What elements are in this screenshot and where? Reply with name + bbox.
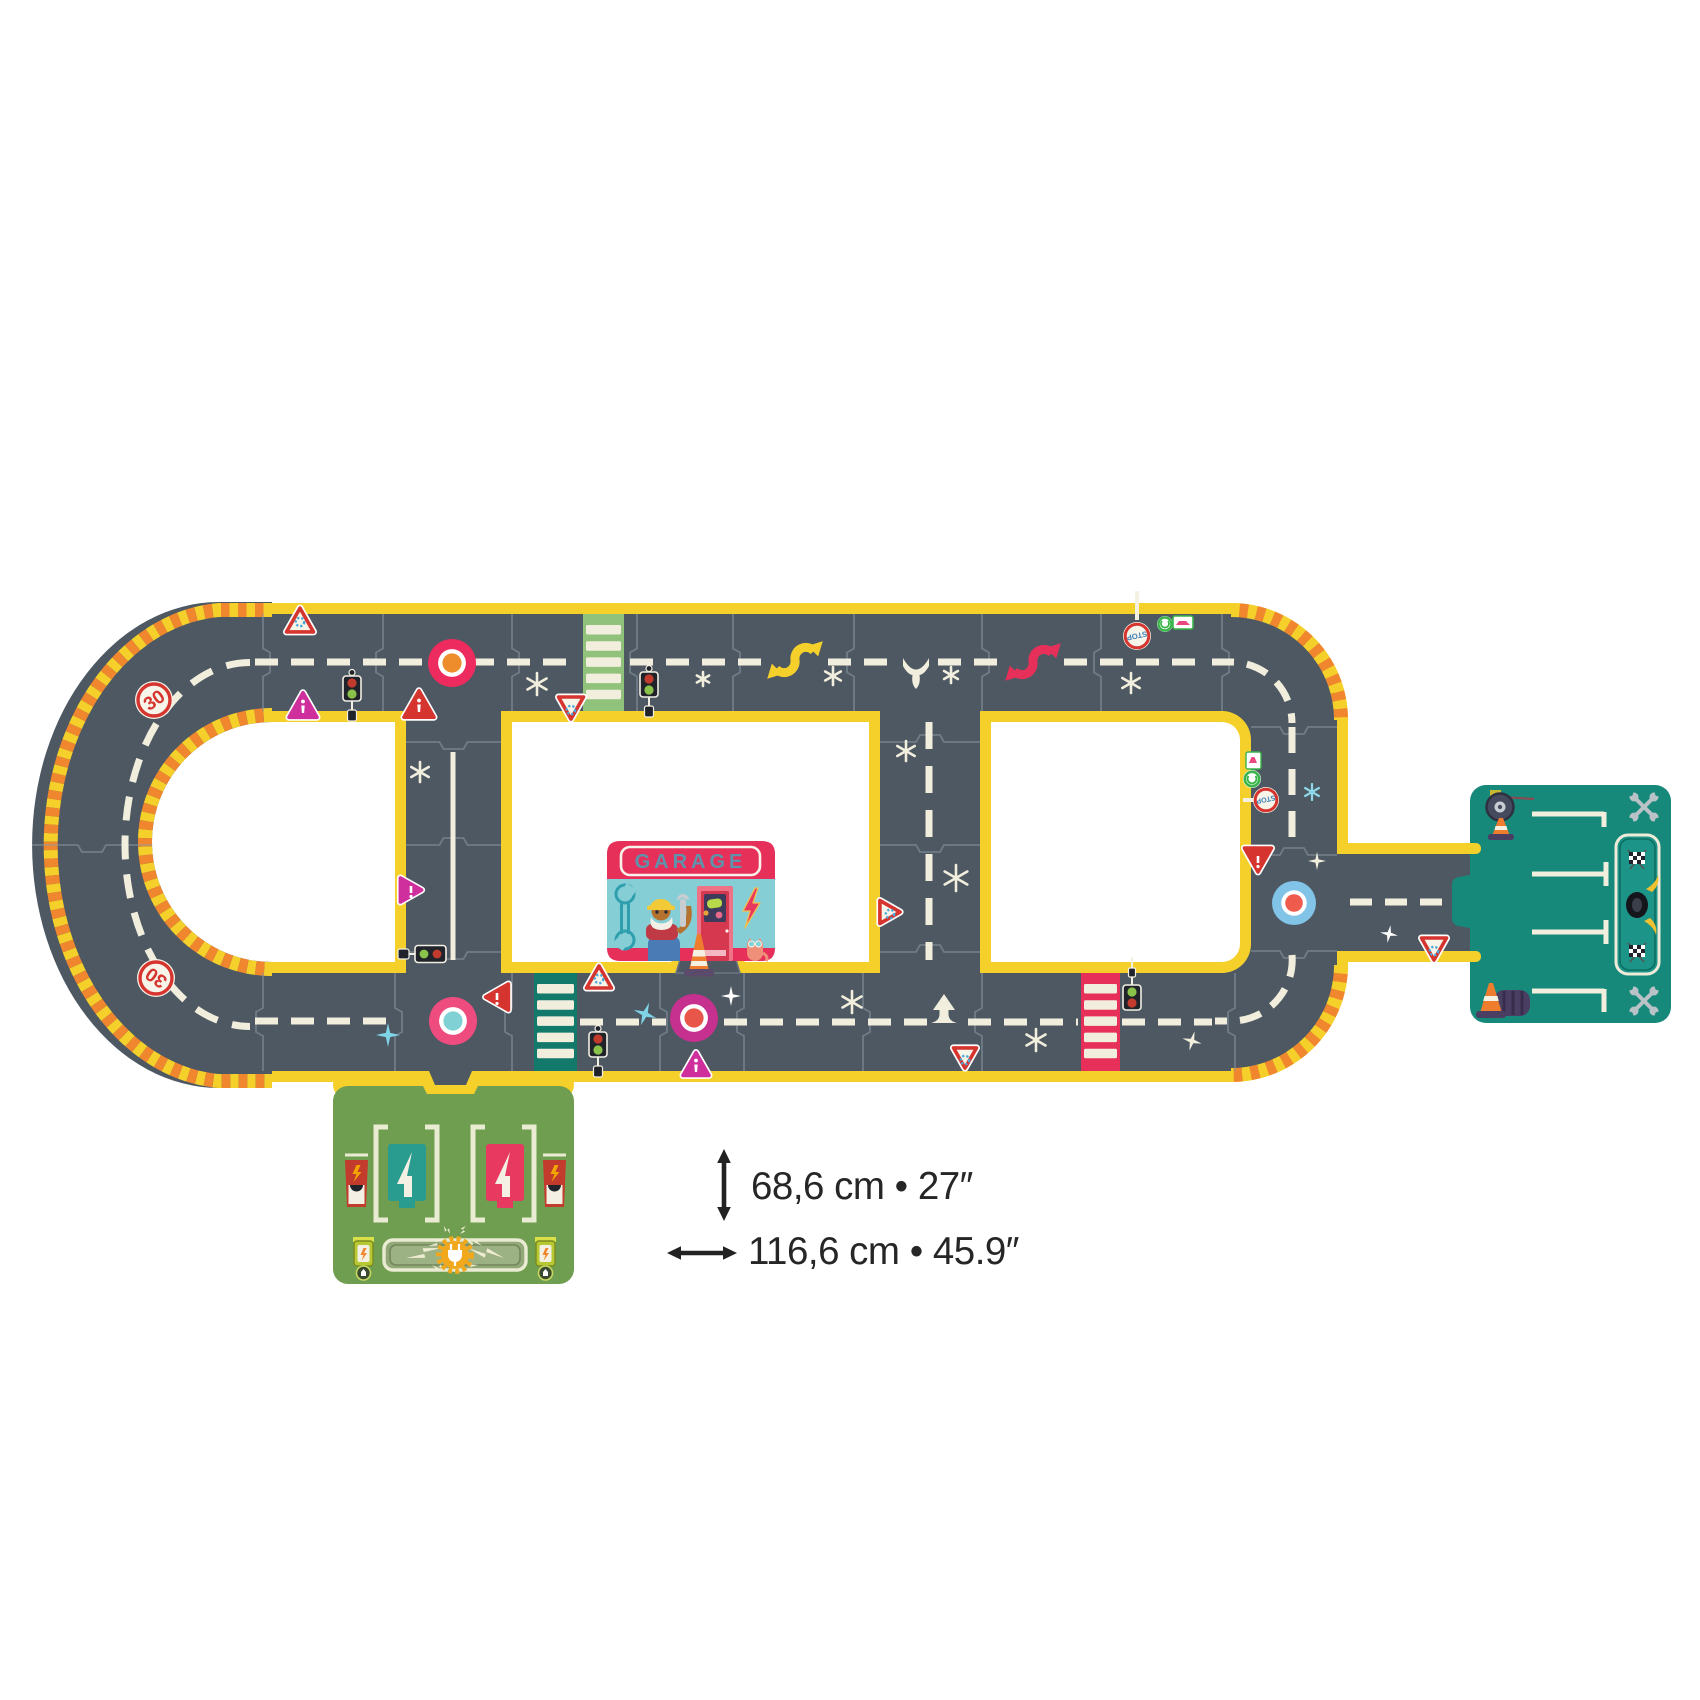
svg-text:68,6 cm • 27″: 68,6 cm • 27″ — [751, 1165, 973, 1208]
svg-text:116,6 cm • 45.9″: 116,6 cm • 45.9″ — [748, 1230, 1019, 1273]
svg-text:GARAGE: GARAGE — [635, 851, 747, 873]
